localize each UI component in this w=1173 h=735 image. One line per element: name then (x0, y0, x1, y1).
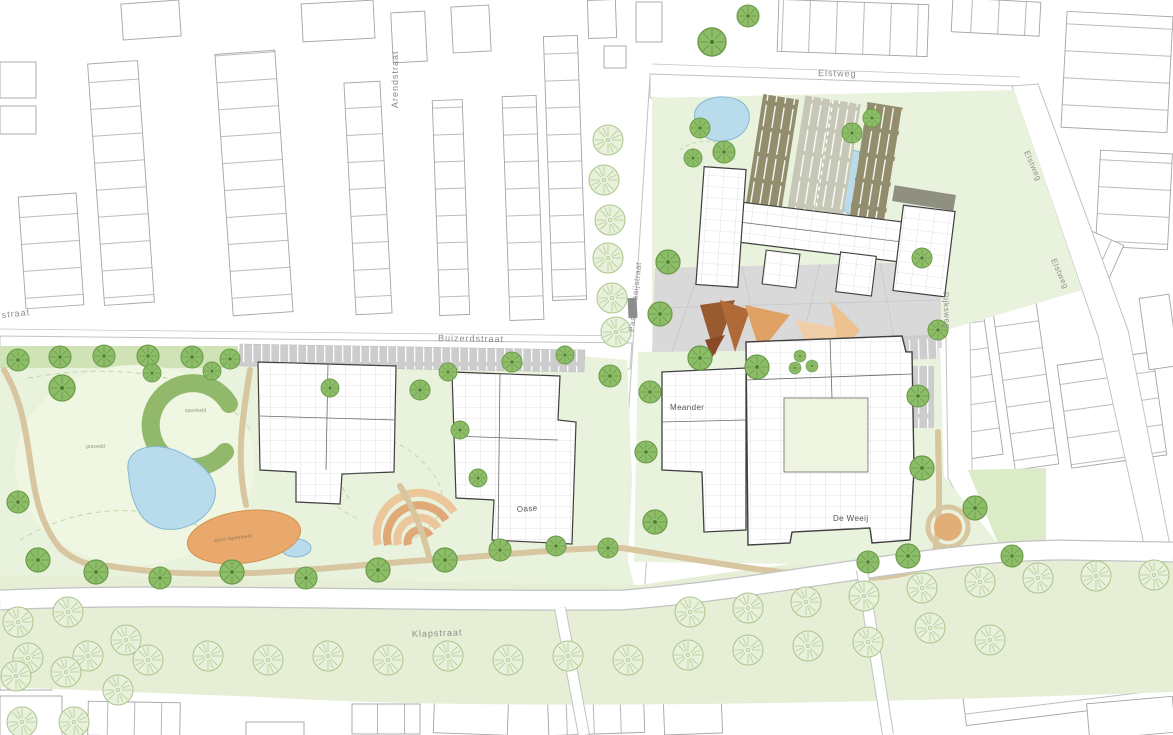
street-label-arendstraat: Arendstraat (390, 50, 400, 108)
area-label-speelveld: speelveld (185, 408, 206, 414)
area-label-grasveld: grasveld (86, 444, 105, 450)
street-label-rijksweg: Rijksweg (941, 292, 952, 329)
building-label-meander: Meander (670, 403, 704, 412)
building-north-stub-2 (836, 252, 877, 296)
street-label-klapstraat: Klapstraat (412, 627, 463, 639)
street-label-buizerdstraat: Buizerdstraat (438, 333, 504, 344)
building-de-weeij (746, 336, 914, 545)
building-label-de-weeij: De Weeij (833, 514, 869, 523)
street-label-elstweg-top: Elstweg (818, 68, 857, 79)
courtyard (784, 398, 868, 472)
orange-mound (934, 513, 962, 541)
site-plan-map: Arendstraat Elstweg Buizerdstraat Passew… (0, 0, 1173, 735)
site-plan-canvas: Arendstraat Elstweg Buizerdstraat Passew… (0, 0, 1173, 735)
building-label-oase: Oase (517, 504, 538, 514)
building-north-west-wing (696, 167, 746, 288)
building-north-stub-1 (762, 250, 800, 288)
